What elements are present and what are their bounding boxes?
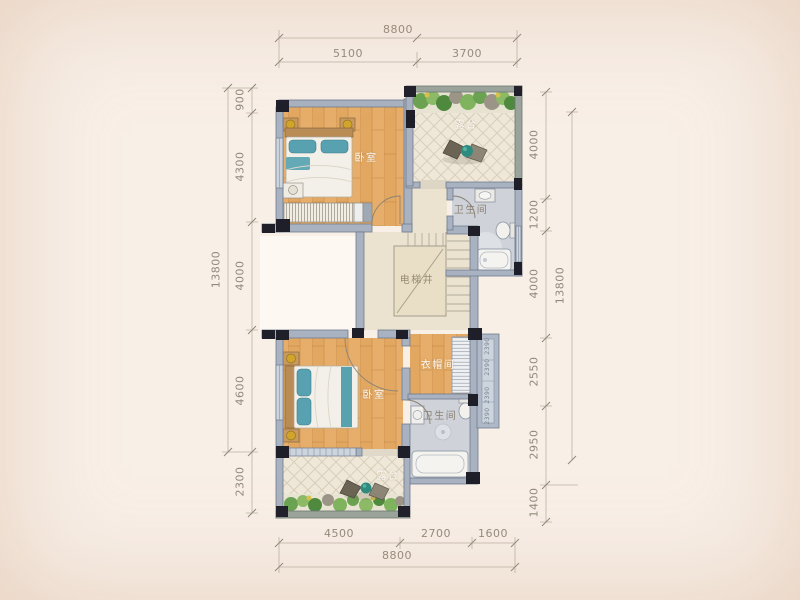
toilet-icon: [510, 223, 515, 238]
dim-right-seg-3: 4000: [528, 254, 541, 314]
room-label-bathroom-top: 卫生间: [436, 204, 506, 218]
dim-right-total: 13800: [554, 256, 567, 316]
terrace-bottom-plants: [283, 494, 405, 513]
dim-top-seg-1: 5100: [318, 47, 378, 60]
terrace-top-plants: [413, 90, 518, 113]
dim-left-seg-3: 4000: [234, 246, 247, 306]
dim-left-seg-4: 4600: [234, 361, 247, 421]
dim-bottom-seg-1: 4500: [309, 527, 369, 540]
throw-blanket: [286, 157, 310, 170]
dim-bottom-total: 8800: [367, 549, 427, 562]
pillow: [297, 369, 311, 396]
dim-left-seg-2: 4300: [234, 137, 247, 197]
terrace-top-threshold: [420, 180, 446, 189]
pillow: [297, 398, 311, 425]
room-label-bedroom-bottom: 卧室: [339, 389, 409, 403]
bay-window-label-4: 2390: [484, 401, 492, 431]
dim-bottom-seg-3: 1600: [463, 527, 523, 540]
lamp-icon: [287, 431, 296, 440]
bedroom-top-cabinet: [284, 203, 372, 222]
void-area: [260, 236, 356, 330]
dim-top-seg-2: 3700: [437, 47, 497, 60]
dim-left-seg-1: 900: [234, 70, 247, 130]
dim-bottom-seg-2: 2700: [406, 527, 466, 540]
room-label-elevator-shaft: 电梯井: [382, 274, 452, 288]
lamp-icon: [287, 354, 296, 363]
dim-top-total: 8800: [368, 23, 428, 36]
dim-left-seg-5: 2300: [234, 452, 247, 512]
dim-right-seg-6: 1400: [528, 473, 541, 533]
headboard: [285, 128, 353, 137]
room-label-bedroom-top: 卧室: [331, 152, 401, 166]
room-label-terrace-bottom: 露台: [353, 470, 423, 484]
dim-right-seg-1: 4000: [528, 115, 541, 175]
plan-drawing: [0, 0, 800, 600]
room-label-bathroom-bottom: 卫生间: [405, 410, 475, 424]
headboard: [285, 366, 294, 428]
dim-left-total: 13800: [210, 240, 223, 300]
dim-right-seg-5: 2950: [528, 415, 541, 475]
dim-right-seg-2: 1200: [528, 185, 541, 245]
plant-icon: [461, 145, 473, 157]
room-label-terrace-top: 露台: [431, 119, 501, 133]
bay-window-label-2: 2390: [484, 352, 492, 382]
dim-right-seg-4: 2550: [528, 342, 541, 402]
terrace-bottom-threshold: [362, 449, 398, 456]
window-terrace-wall: [286, 448, 356, 456]
floor-plan-image: 卧室 露台 卫生间 电梯井 卧室 衣帽间 卫生间 露台 8800 5100 37…: [0, 0, 800, 600]
room-label-cloakroom: 衣帽间: [403, 359, 473, 373]
plant-icon: [361, 483, 372, 494]
pillow: [289, 140, 316, 153]
